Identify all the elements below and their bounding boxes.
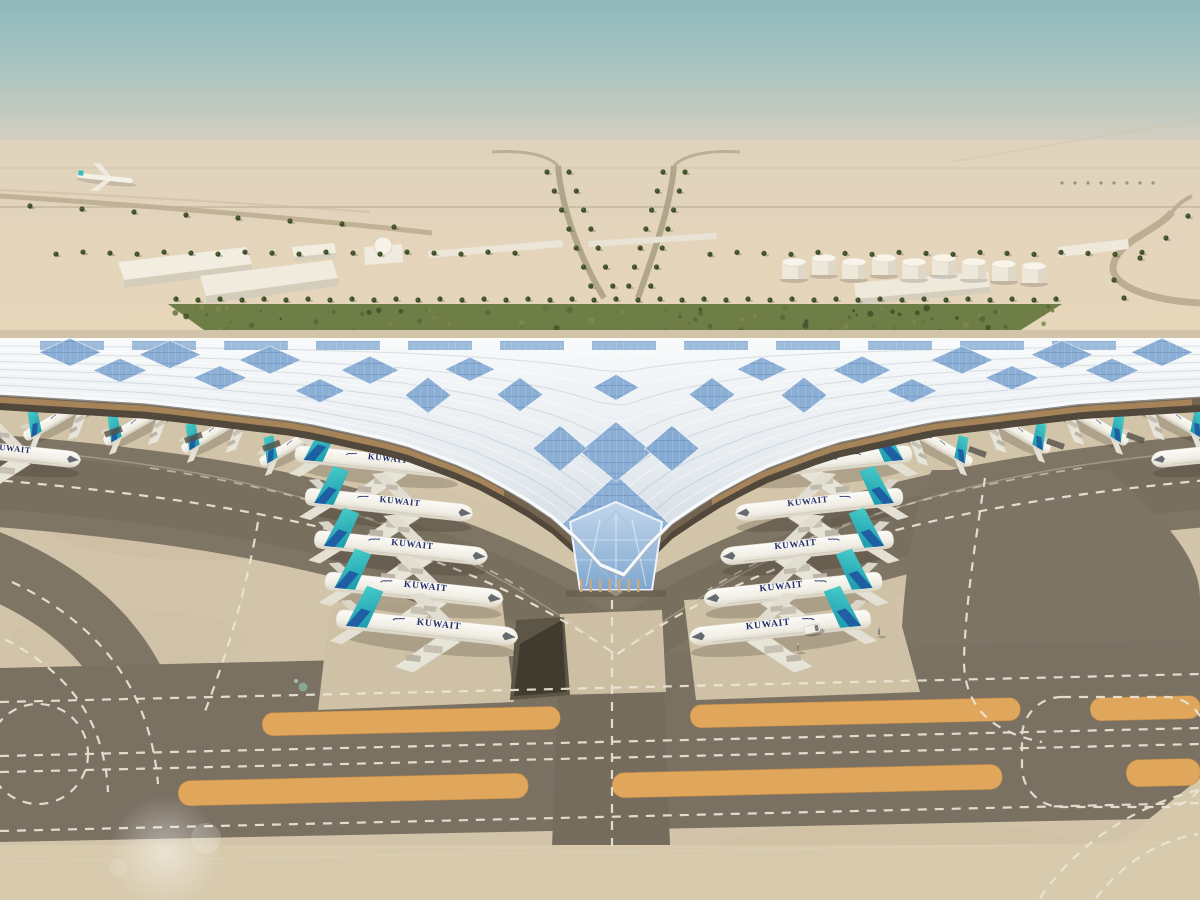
garden-tree — [314, 319, 319, 324]
palm-highlight — [460, 298, 462, 300]
palm-highlight — [513, 251, 515, 253]
palm-highlight — [80, 207, 82, 209]
garden-tree — [963, 322, 970, 329]
airport-aerial-rendering: KUWAITKUWAITKUWAITKUWAITKUWAITKUWAITKUWA… — [0, 0, 1200, 900]
palm-highlight — [567, 227, 569, 229]
palm-highlight — [582, 265, 584, 267]
palm-highlight — [589, 227, 591, 229]
facade-column — [599, 579, 601, 592]
palm-highlight — [735, 251, 737, 253]
garden-tree — [332, 310, 336, 314]
palm-highlight — [378, 252, 380, 254]
palm-highlight — [812, 298, 814, 300]
ground-post-cap — [797, 643, 799, 645]
palm-highlight — [644, 227, 646, 229]
garden-tree — [844, 324, 849, 329]
palm-highlight — [132, 210, 134, 212]
palm-highlight — [28, 204, 30, 206]
palm-highlight — [944, 298, 946, 300]
garden-tree — [360, 312, 364, 316]
garden-tree — [867, 311, 873, 317]
scene-svg: KUWAITKUWAITKUWAITKUWAITKUWAITKUWAITKUWA… — [0, 0, 1200, 900]
fuel-tank-top — [812, 254, 836, 262]
distant-tree — [1099, 181, 1102, 184]
post-shadow — [878, 636, 886, 638]
palm-highlight — [658, 297, 660, 299]
palm-highlight — [1032, 253, 1034, 255]
palm-highlight — [575, 189, 577, 191]
palm-highlight — [1112, 278, 1114, 280]
palm-highlight — [416, 298, 418, 300]
palm-highlight — [702, 297, 704, 299]
palm-highlight — [639, 246, 641, 248]
garden-tree — [1047, 305, 1051, 309]
palm-highlight — [666, 227, 668, 229]
garden-tree — [259, 310, 262, 313]
garden-tree — [621, 310, 625, 314]
garden-tree — [679, 310, 682, 313]
palm-highlight — [174, 297, 176, 299]
garden-tree — [389, 323, 392, 326]
palm-highlight — [834, 297, 836, 299]
palm-highlight — [284, 298, 286, 300]
palm-highlight — [582, 208, 584, 210]
palm-highlight — [216, 252, 218, 254]
palm-highlight — [672, 208, 674, 210]
facade-column — [580, 579, 582, 592]
garden-tree — [804, 319, 808, 323]
garden-tree — [399, 309, 404, 314]
garden-tree — [183, 313, 189, 319]
flare-green-glint — [294, 679, 298, 683]
terminal-facade — [566, 502, 666, 597]
palm-highlight — [649, 284, 651, 286]
palm-highlight — [843, 252, 845, 254]
palm-highlight — [900, 298, 902, 300]
garden-tree — [567, 307, 573, 313]
facade-column — [590, 579, 592, 592]
garden-tree — [688, 322, 691, 325]
palm-highlight — [218, 297, 220, 299]
palm-highlight — [553, 189, 555, 191]
palm-highlight — [678, 189, 680, 191]
palm-highlight — [1005, 252, 1007, 254]
garden-tree — [172, 310, 178, 316]
solar-panel-strip — [960, 341, 1024, 350]
palm-highlight — [243, 250, 245, 252]
facade-column — [637, 579, 639, 592]
palm-highlight — [351, 251, 353, 253]
garden-tree — [205, 313, 208, 316]
palm-highlight — [683, 170, 685, 172]
solar-panel-strip — [776, 341, 840, 350]
palm-highlight — [1086, 252, 1088, 254]
palm-highlight — [328, 298, 330, 300]
palm-highlight — [597, 246, 599, 248]
palm-highlight — [856, 298, 858, 300]
palm-highlight — [604, 265, 606, 267]
distant-tree — [1138, 181, 1141, 184]
garden-tree — [542, 305, 549, 312]
garden-tree — [1051, 309, 1054, 312]
palm-highlight — [627, 284, 629, 286]
palm-highlight — [978, 251, 980, 253]
garden-tree — [915, 310, 920, 315]
distant-tree — [1073, 181, 1076, 184]
palm-highlight — [297, 252, 299, 254]
palm-highlight — [988, 298, 990, 300]
flare-spot — [109, 859, 127, 877]
palm-highlight — [196, 298, 198, 300]
palm-highlight — [633, 265, 635, 267]
palm-highlight — [350, 297, 352, 299]
background — [0, 0, 1200, 350]
garden-tree — [297, 311, 300, 314]
garden-tree — [448, 322, 451, 325]
palm-highlight — [951, 253, 953, 255]
garden-tree — [912, 320, 916, 324]
palm-highlight — [526, 297, 528, 299]
palm-highlight — [897, 251, 899, 253]
palm-highlight — [1186, 214, 1188, 216]
garden-tree — [740, 317, 745, 322]
garden-tree — [564, 308, 567, 311]
palm-highlight — [1010, 297, 1012, 299]
palm-highlight — [816, 251, 818, 253]
fuel-tank-top — [842, 258, 866, 266]
palm-highlight — [661, 170, 663, 172]
garden-tree — [202, 306, 204, 308]
garden-tree — [229, 320, 234, 325]
garden-tree — [280, 318, 283, 321]
palm-highlight — [459, 252, 461, 254]
palm-highlight — [724, 298, 726, 300]
fuel-tank-top — [992, 260, 1016, 268]
palm-highlight — [324, 250, 326, 252]
palm-highlight — [966, 297, 968, 299]
garden-tree — [780, 315, 785, 320]
solar-panel-strip — [868, 341, 932, 350]
solar-panel-strip — [592, 341, 656, 350]
garden-tree — [955, 316, 959, 320]
flare-spot — [191, 823, 221, 853]
palm-highlight — [708, 253, 710, 255]
palm-highlight — [655, 265, 657, 267]
palm-highlight — [394, 297, 396, 299]
palm-highlight — [392, 225, 394, 227]
garden-tree — [520, 325, 525, 330]
garden-tree — [1041, 321, 1046, 326]
palm-highlight — [611, 284, 613, 286]
facade-column — [628, 579, 630, 592]
palm-highlight — [189, 251, 191, 253]
garden-tree — [923, 305, 930, 312]
fuel-tank-top — [782, 258, 806, 266]
distant-tree — [1060, 181, 1063, 184]
palm-highlight — [661, 246, 663, 248]
fuel-tank-top — [872, 254, 896, 262]
fuel-tank-top — [1022, 262, 1046, 270]
palm-highlight — [636, 298, 638, 300]
palm-highlight — [135, 252, 137, 254]
palm-highlight — [592, 298, 594, 300]
garden-tree — [588, 317, 595, 324]
distant-aircraft-tail — [78, 170, 83, 175]
palm-highlight — [236, 216, 238, 218]
garden-tree — [852, 309, 855, 312]
shoulder-strip — [1126, 758, 1200, 787]
garden-tree — [802, 323, 808, 329]
palm-highlight — [1032, 298, 1034, 300]
palm-highlight — [438, 297, 440, 299]
palm-highlight — [768, 298, 770, 300]
palm-highlight — [570, 297, 572, 299]
garden-tree — [1042, 312, 1045, 315]
palm-highlight — [656, 189, 658, 191]
garden-tree — [519, 320, 524, 325]
palm-highlight — [504, 298, 506, 300]
palm-highlight — [372, 298, 374, 300]
garden-tree — [699, 308, 703, 312]
garden-tree — [678, 315, 682, 319]
garden-tree — [782, 305, 788, 311]
solar-panel-strip — [500, 341, 564, 350]
palm-highlight — [184, 213, 186, 215]
ground-post-cap — [878, 627, 880, 629]
solar-panel-strip — [316, 341, 380, 350]
garden-tree — [979, 316, 985, 322]
garden-tree — [693, 318, 697, 322]
palm-highlight — [405, 250, 407, 252]
garden-tree — [856, 314, 858, 316]
palm-highlight — [240, 298, 242, 300]
palm-highlight — [878, 297, 880, 299]
garden-tree — [1003, 325, 1008, 330]
palm-highlight — [1054, 297, 1056, 299]
facade-column — [609, 579, 611, 592]
garden-tree — [225, 306, 229, 310]
garden-tree — [898, 313, 902, 317]
palm-highlight — [162, 250, 164, 252]
palm-highlight — [567, 170, 569, 172]
palm-highlight — [432, 251, 434, 253]
palm-highlight — [262, 297, 264, 299]
palm-highlight — [746, 297, 748, 299]
palm-highlight — [548, 298, 550, 300]
palm-highlight — [482, 297, 484, 299]
post-shadow — [797, 652, 805, 654]
solar-panel-strip — [408, 341, 472, 350]
flare-green-glint — [299, 683, 308, 692]
palm-highlight — [870, 253, 872, 255]
palm-highlight — [486, 250, 488, 252]
palm-highlight — [614, 297, 616, 299]
solar-panel-strip — [224, 341, 288, 350]
shoulder-strip — [1090, 696, 1200, 721]
palm-highlight — [650, 208, 652, 210]
palm-highlight — [81, 250, 83, 252]
palm-highlight — [340, 222, 342, 224]
palm-highlight — [306, 297, 308, 299]
garden-tree — [664, 308, 668, 312]
garden-tree — [871, 324, 876, 329]
palm-highlight — [762, 252, 764, 254]
facade-column — [618, 579, 620, 592]
palm-highlight — [545, 170, 547, 172]
garden-tree — [847, 315, 851, 319]
distant-tree — [1151, 181, 1154, 184]
garden-tree — [985, 325, 991, 331]
palm-highlight — [922, 297, 924, 299]
palm-highlight — [924, 252, 926, 254]
palm-highlight — [789, 253, 791, 255]
palm-highlight — [108, 251, 110, 253]
palm-highlight — [1059, 251, 1061, 253]
palm-highlight — [1113, 253, 1115, 255]
palm-highlight — [575, 246, 577, 248]
garden-tree — [698, 311, 703, 316]
palm-highlight — [1140, 251, 1142, 253]
palm-highlight — [288, 219, 290, 221]
dome — [374, 237, 392, 255]
distant-tree — [1112, 181, 1115, 184]
palm-highlight — [680, 298, 682, 300]
palm-highlight — [790, 297, 792, 299]
fuel-tank-top — [962, 258, 986, 266]
palm-highlight — [589, 284, 591, 286]
garden-tree — [376, 308, 381, 313]
palm-highlight — [1122, 296, 1124, 298]
garden-tree — [433, 316, 436, 319]
solar-panel-strip — [684, 341, 748, 350]
garden-tree — [249, 323, 255, 329]
garden-tree — [753, 314, 757, 318]
garden-tree — [890, 309, 895, 314]
distant-tree — [1125, 181, 1128, 184]
garden-tree — [931, 318, 934, 321]
fuel-tank-top — [902, 258, 926, 266]
palm-highlight — [54, 252, 56, 254]
palm-highlight — [1138, 256, 1140, 258]
palm-highlight — [270, 251, 272, 253]
palm-highlight — [1164, 236, 1166, 238]
palm-highlight — [560, 208, 562, 210]
distant-tree — [1086, 181, 1089, 184]
garden-tree — [366, 310, 371, 315]
garden-tree — [424, 308, 429, 313]
garden-tree — [921, 319, 926, 324]
garden-tree — [993, 310, 998, 315]
garden-tree — [707, 324, 712, 329]
garden-tree — [216, 306, 221, 311]
garden-tree — [880, 308, 883, 311]
garden-tree — [417, 319, 422, 324]
garden-tree — [485, 310, 490, 315]
